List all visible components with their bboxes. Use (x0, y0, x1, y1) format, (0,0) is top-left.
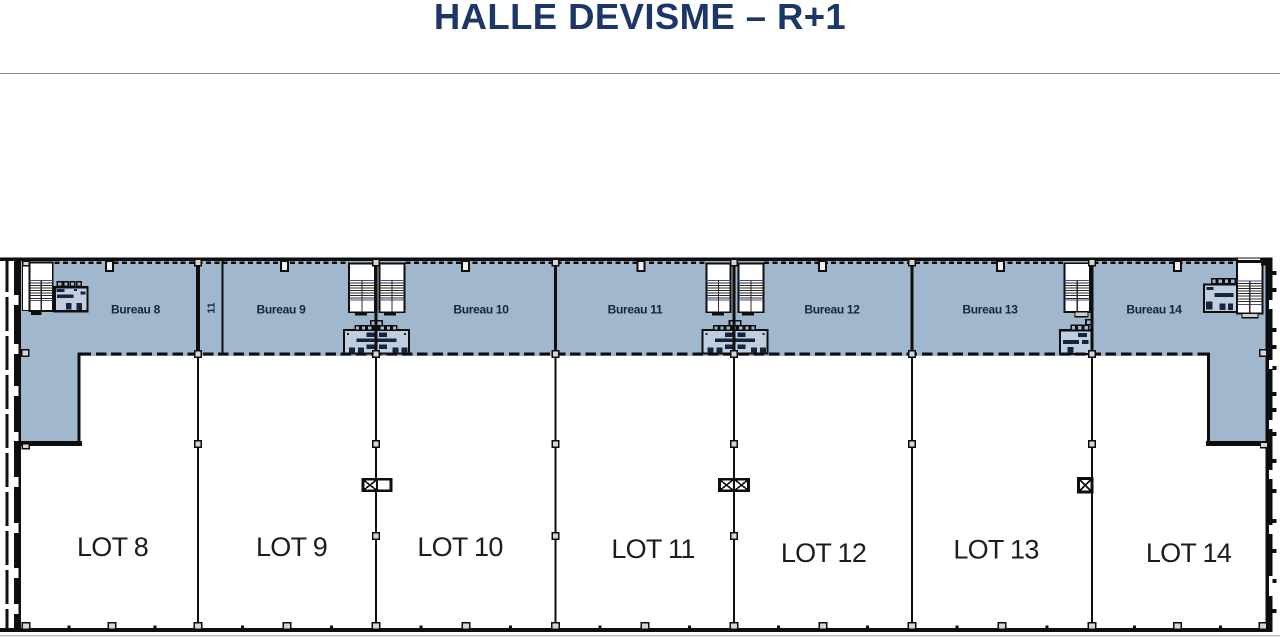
svg-text:Bureau 8: Bureau 8 (111, 303, 161, 317)
svg-text:LOT 13: LOT 13 (953, 535, 1038, 565)
svg-text:LOT 12: LOT 12 (781, 538, 866, 568)
svg-text:Bureau 9: Bureau 9 (257, 303, 307, 317)
svg-text:LOT 10: LOT 10 (417, 532, 502, 562)
svg-text:Bureau 11: Bureau 11 (608, 303, 663, 317)
svg-text:LOT 11: LOT 11 (611, 534, 694, 564)
svg-text:LOT 9: LOT 9 (256, 532, 327, 562)
svg-text:Bureau 14: Bureau 14 (1126, 303, 1182, 317)
svg-text:Bureau 12: Bureau 12 (804, 303, 860, 317)
svg-text:Bureau 13: Bureau 13 (962, 303, 1018, 317)
svg-text:LOT 8: LOT 8 (77, 532, 148, 562)
svg-text:Bureau 10: Bureau 10 (453, 303, 509, 317)
svg-text:11: 11 (206, 302, 218, 313)
svg-text:LOT 14: LOT 14 (1146, 538, 1232, 568)
